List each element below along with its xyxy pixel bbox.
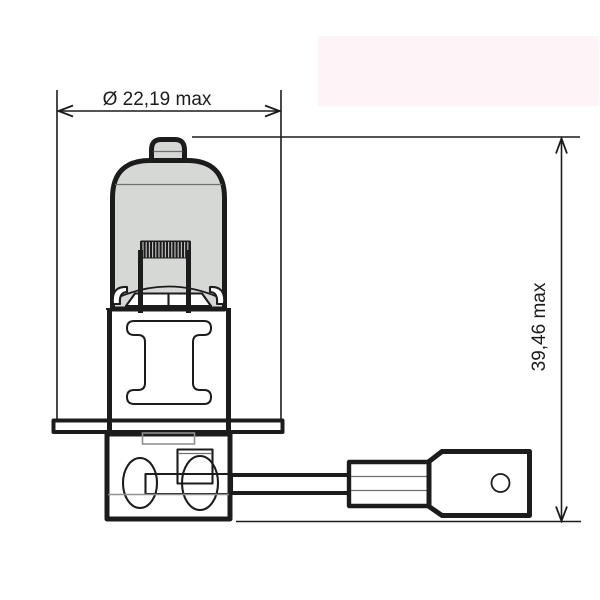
bulb-drawing [54, 140, 283, 520]
filament-coil [140, 241, 191, 259]
wire [232, 475, 352, 493]
width-dimension-label: Ø 22,19 max [103, 89, 212, 110]
height-dimension-label: 39,46 max [529, 282, 550, 371]
mounting-flange [54, 421, 283, 433]
coil-turns [143, 242, 188, 258]
spade-terminal [429, 452, 530, 516]
lead-assembly [232, 452, 530, 516]
terminal-hole [492, 474, 510, 492]
i-beam-cutout [127, 321, 211, 404]
bulb-technical-drawing: Ø 22,19 max 39,46 max [0, 0, 600, 600]
highlight-box [318, 36, 599, 106]
crimp-sleeve [349, 462, 429, 506]
technical-drawing-canvas: Ø 22,19 max 39,46 max [0, 0, 600, 600]
